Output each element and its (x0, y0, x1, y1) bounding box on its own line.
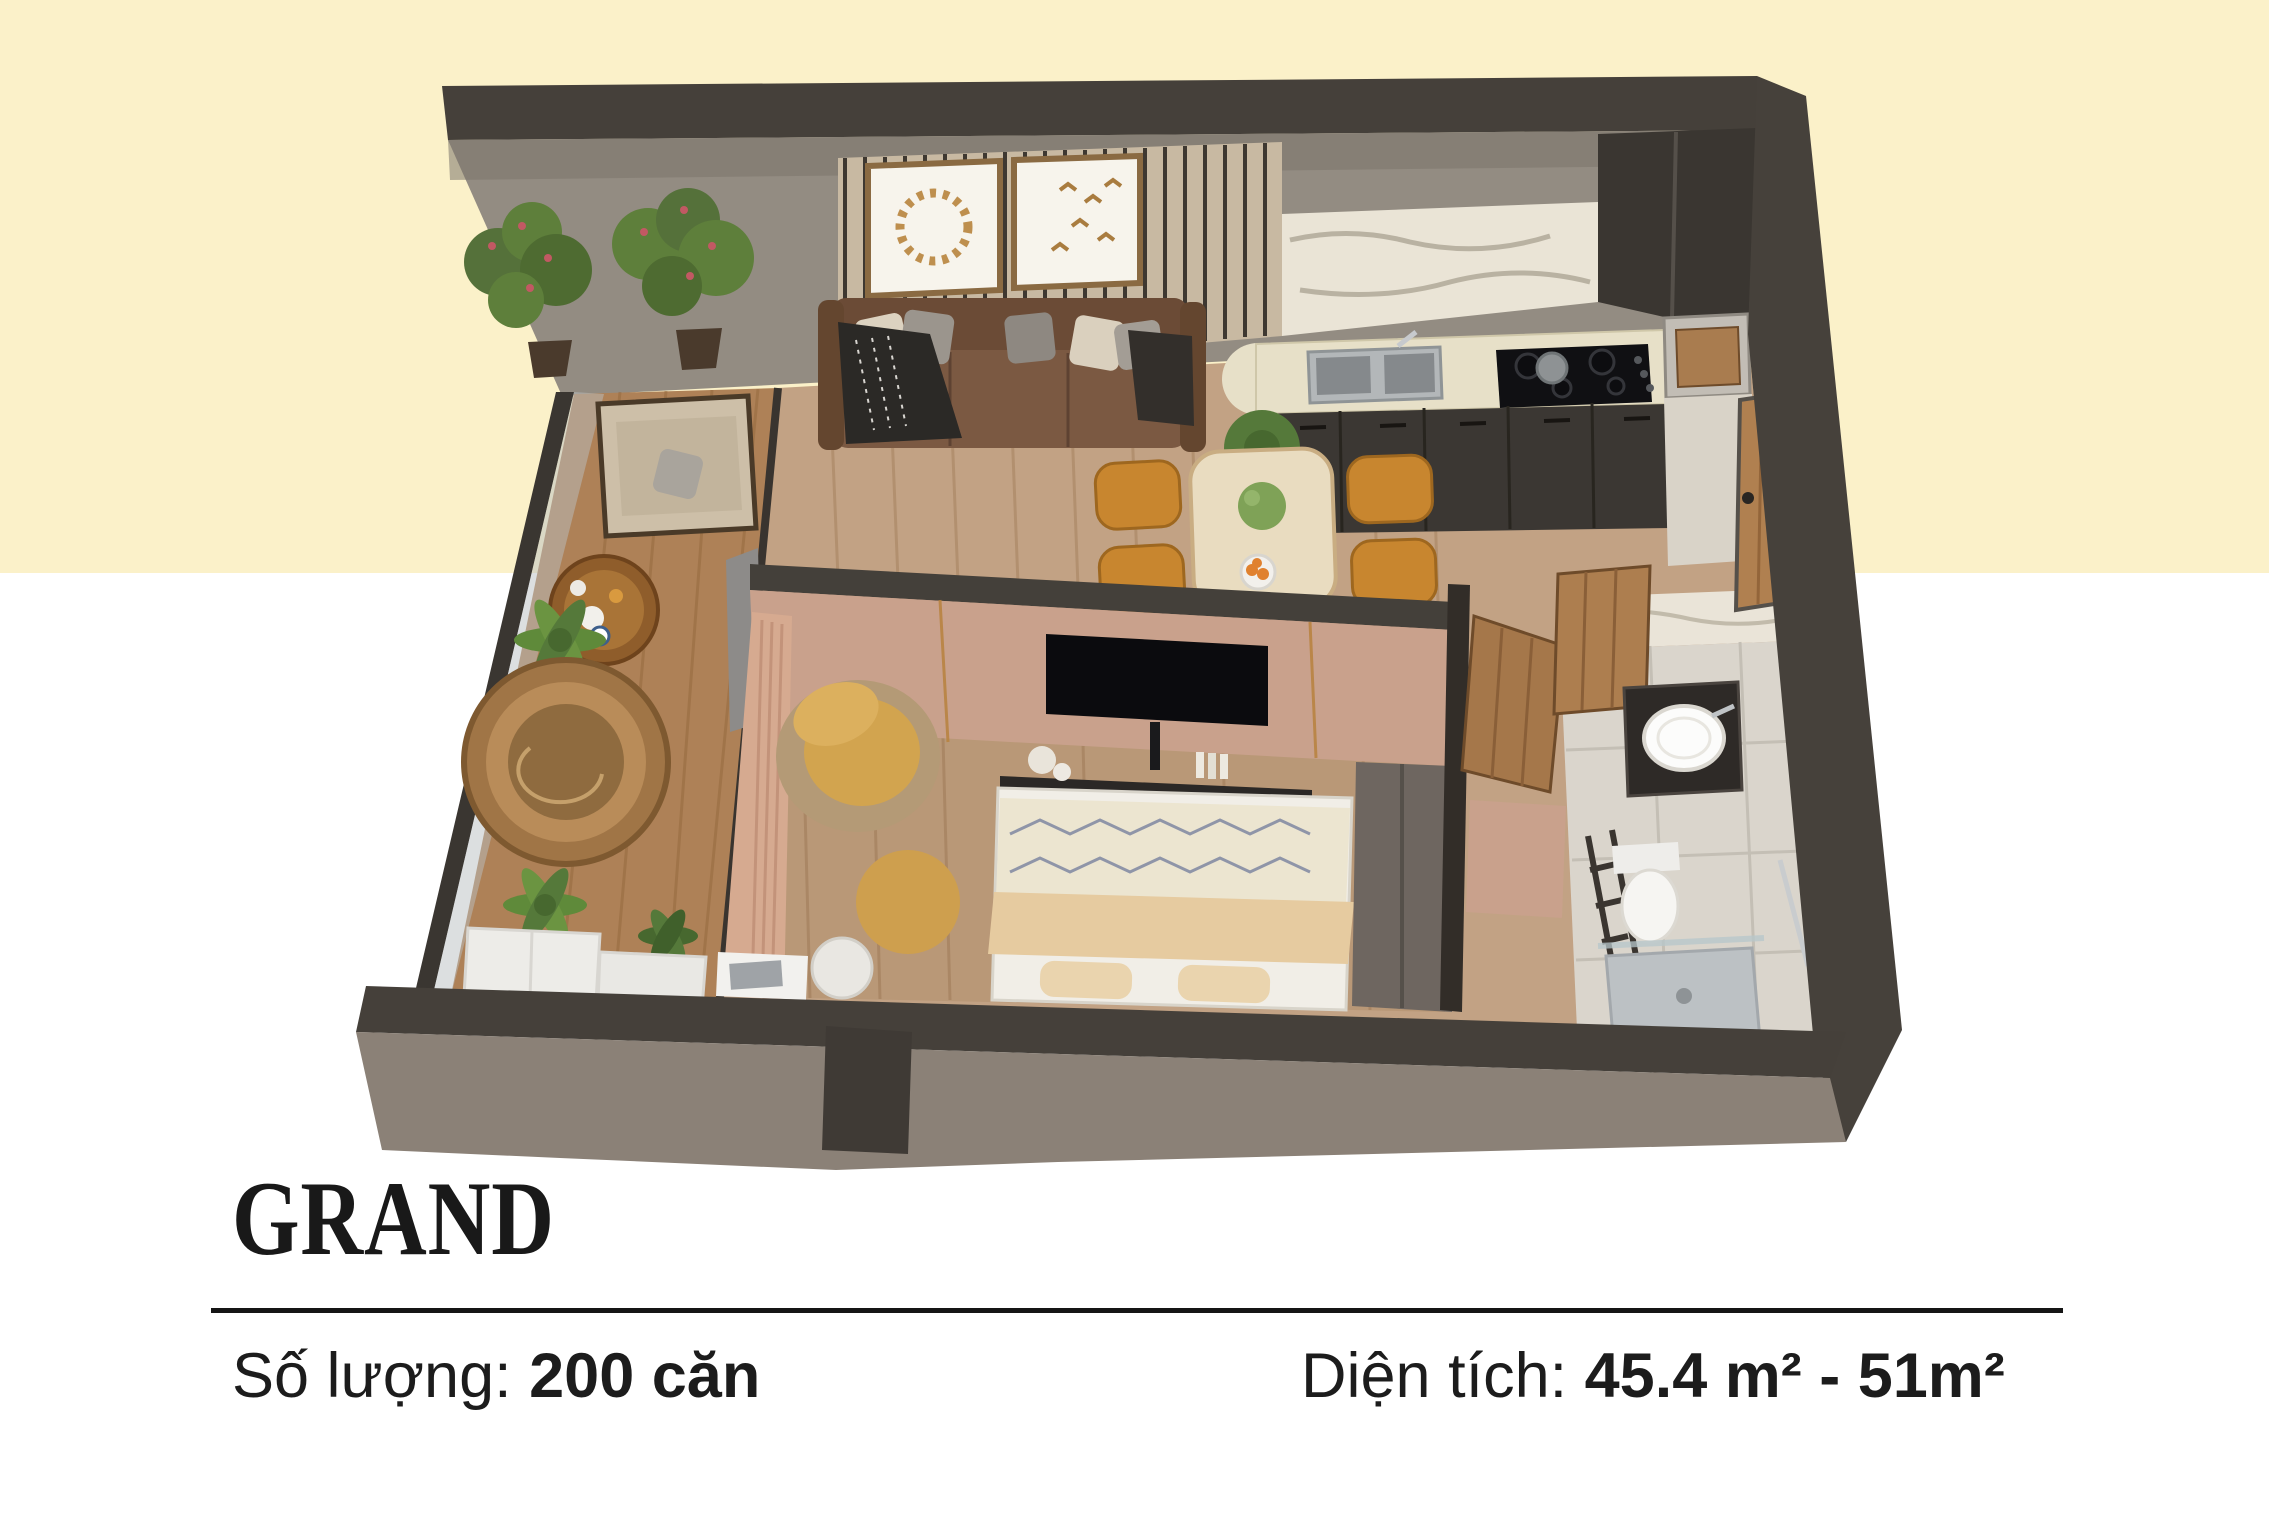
decor-books (1208, 753, 1216, 779)
cooktop-knob (1646, 384, 1654, 392)
shrub (488, 272, 544, 328)
sink-basin-right (1384, 353, 1435, 394)
flower (640, 228, 648, 236)
cooktop-knob (1634, 356, 1642, 364)
quantity-value: 200 căn (529, 1341, 760, 1411)
bed-pillow (1177, 964, 1270, 1003)
sofa-pillow-gray (1004, 312, 1057, 365)
burner (1608, 378, 1624, 394)
pot-on-stove (1537, 353, 1567, 383)
tv-stand (1150, 722, 1160, 770)
area-label: Diện tích: (1301, 1341, 1585, 1411)
apartment-3d-floor-plan (0, 0, 2269, 1525)
cabinet-seam (530, 931, 532, 999)
table-centerpiece-plant (1238, 482, 1286, 530)
ottoman (856, 850, 960, 954)
flower (680, 206, 688, 214)
area-value: 45.4 m² - 51m² (1585, 1341, 2005, 1411)
planter-pot (528, 340, 572, 378)
divider-line (211, 1308, 2063, 1313)
palm-core (548, 628, 572, 652)
quantity-stat: Số lượng: 200 căn (232, 1340, 760, 1412)
decor-books (1220, 754, 1228, 779)
entry-door-handle (1742, 492, 1754, 504)
hallway-cabinet (1466, 800, 1566, 918)
shower-drain (1676, 988, 1692, 1004)
dining-chair (1351, 539, 1437, 608)
dining-chair (1094, 460, 1181, 530)
flower (686, 272, 694, 280)
plant-sprig (1244, 490, 1260, 506)
sink-basin-left (1316, 356, 1371, 395)
tall-fridge-cabinet (1598, 128, 1757, 336)
wall-art-fish-swirl (868, 161, 1000, 296)
vase (570, 580, 586, 596)
flower (518, 222, 526, 230)
facade-pillar (822, 1026, 912, 1154)
hallway-wood-door (1462, 616, 1564, 792)
planter-pot (676, 328, 722, 370)
cooktop-knob (1640, 370, 1648, 378)
bed-patterned-throw (996, 798, 1350, 906)
flower (708, 242, 716, 250)
oven-door-glass (1676, 327, 1740, 387)
back-wall-cap (442, 76, 1763, 140)
plan-title: GRAND (232, 1166, 555, 1272)
orange (1257, 568, 1269, 580)
decor-books (1196, 752, 1204, 778)
laptop (729, 960, 783, 990)
floor-plan-page: GRAND Số lượng: 200 căn Diện tích: 45.4 … (0, 0, 2269, 1525)
sofa-throw-right (1128, 330, 1194, 426)
decor-flowers (1028, 746, 1056, 774)
toilet-bowl (1622, 870, 1678, 942)
decor-vase (1053, 763, 1071, 781)
desk-chair (812, 938, 872, 998)
quantity-label: Số lượng: (232, 1341, 529, 1411)
bed-duvet (988, 892, 1354, 964)
burner (1590, 350, 1614, 374)
flower (526, 284, 534, 292)
croissant (609, 589, 623, 603)
sofa (818, 298, 1206, 452)
balcony-armchair (598, 396, 756, 536)
area-stat: Diện tích: 45.4 m² - 51m² (1301, 1340, 2005, 1412)
hot-tub (464, 660, 668, 864)
shrub (642, 256, 702, 316)
flower (544, 254, 552, 262)
palm-core (534, 894, 556, 916)
dining-chair (1347, 455, 1433, 524)
orange (1252, 558, 1262, 568)
tv-screen (1046, 634, 1268, 726)
flower (488, 242, 496, 250)
bed-pillow (1039, 960, 1132, 999)
